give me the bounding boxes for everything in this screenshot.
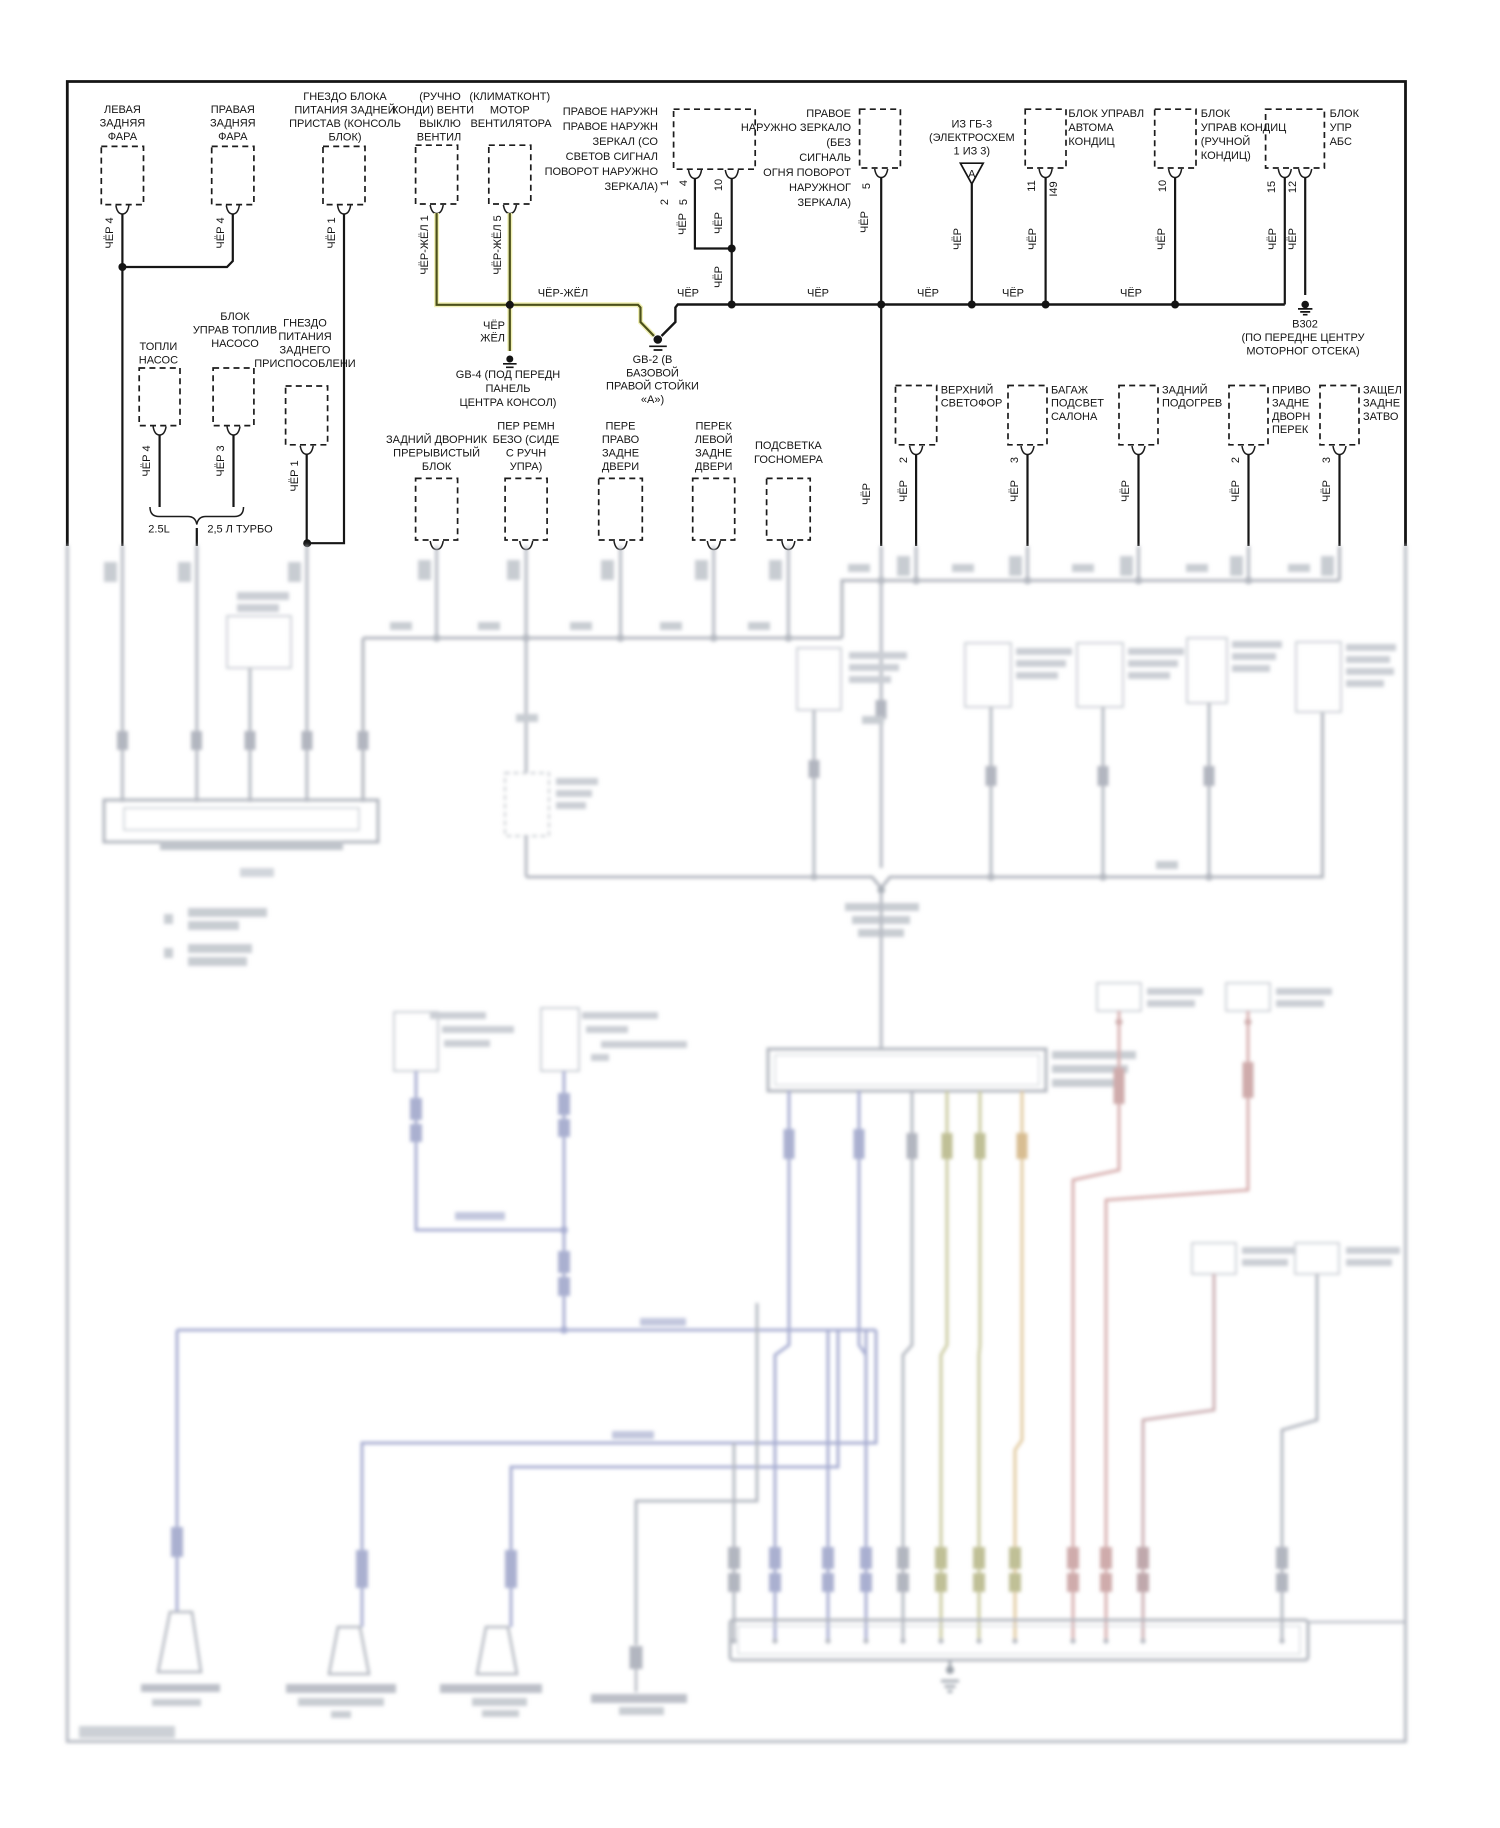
svg-text:ФАРА: ФАРА xyxy=(108,131,138,143)
svg-text:ЧЁР 1: ЧЁР 1 xyxy=(326,217,338,248)
svg-text:НАРУЖНО ЗЕРКАЛО: НАРУЖНО ЗЕРКАЛО xyxy=(741,122,852,134)
svg-text:БАГАЖ: БАГАЖ xyxy=(1051,384,1088,396)
svg-text:ЧЁР: ЧЁР xyxy=(898,480,910,502)
svg-text:ЗАЩЕЛ: ЗАЩЕЛ xyxy=(1363,384,1402,396)
svg-text:ЧЁР: ЧЁР xyxy=(807,288,829,300)
svg-text:ЗАДНЕ: ЗАДНЕ xyxy=(1272,398,1309,410)
svg-text:БЕЗО (СИДЕ: БЕЗО (СИДЕ xyxy=(493,434,560,446)
svg-text:2: 2 xyxy=(659,199,671,205)
svg-text:GB-2 (В: GB-2 (В xyxy=(633,354,673,366)
svg-text:10: 10 xyxy=(1157,180,1169,192)
svg-text:ОГНЯ ПОВОРОТ: ОГНЯ ПОВОРОТ xyxy=(763,167,851,179)
svg-text:ЗАДНИЙ ДВОРНИК: ЗАДНИЙ ДВОРНИК xyxy=(386,433,488,446)
svg-text:ЧЁР: ЧЁР xyxy=(1230,480,1242,502)
svg-text:ГНЕЗДО БЛОКА: ГНЕЗДО БЛОКА xyxy=(303,91,387,103)
svg-text:ВЕНТИЛЯТОРА: ВЕНТИЛЯТОРА xyxy=(470,118,552,130)
svg-text:ПРАВО: ПРАВО xyxy=(602,434,640,446)
svg-text:ЧЁР: ЧЁР xyxy=(713,212,725,234)
svg-text:2.5L: 2.5L xyxy=(148,524,169,536)
svg-text:(БЕЗ: (БЕЗ xyxy=(826,137,851,149)
svg-text:С РУЧН: С РУЧН xyxy=(506,448,546,460)
svg-text:ЖЁЛ: ЖЁЛ xyxy=(480,333,505,345)
svg-text:ПРИВО: ПРИВО xyxy=(1272,384,1311,396)
svg-text:ЗАДНЕ: ЗАДНЕ xyxy=(1363,398,1400,410)
svg-text:ЧЁР: ЧЁР xyxy=(1321,480,1333,502)
svg-text:ПАНЕЛЬ: ПАНЕЛЬ xyxy=(486,383,531,395)
svg-text:ПРАВОЙ СТОЙКИ: ПРАВОЙ СТОЙКИ xyxy=(606,380,699,393)
svg-text:АБС: АБС xyxy=(1330,136,1352,148)
svg-text:ЧЁР: ЧЁР xyxy=(483,320,505,332)
svg-text:СВЕТОВ СИГНАЛ: СВЕТОВ СИГНАЛ xyxy=(566,151,658,163)
svg-text:БЛОК: БЛОК xyxy=(422,461,452,473)
svg-text:ЧЁР: ЧЁР xyxy=(861,483,873,505)
svg-text:ЧЁР: ЧЁР xyxy=(952,228,964,250)
svg-text:ЧЁР-ЖЁЛ 1: ЧЁР-ЖЁЛ 1 xyxy=(419,215,431,275)
svg-text:ПРАВАЯ: ПРАВАЯ xyxy=(211,104,255,116)
svg-text:ПРАВОЕ НАРУЖН: ПРАВОЕ НАРУЖН xyxy=(563,106,658,118)
svg-text:ЧЁР: ЧЁР xyxy=(1267,228,1279,250)
svg-text:ЗЕРКАЛА): ЗЕРКАЛА) xyxy=(604,181,658,193)
svg-text:ДВЕРИ: ДВЕРИ xyxy=(695,461,732,473)
svg-text:ЧЁР: ЧЁР xyxy=(859,211,871,233)
svg-text:ЧЁР: ЧЁР xyxy=(1287,228,1299,250)
svg-text:УПР: УПР xyxy=(1330,122,1352,134)
svg-text:ПИТАНИЯ: ПИТАНИЯ xyxy=(278,331,331,343)
svg-text:5: 5 xyxy=(861,183,873,189)
svg-text:ЧЁР: ЧЁР xyxy=(1027,228,1039,250)
svg-text:5: 5 xyxy=(678,199,690,205)
svg-text:ПОДСВЕТ: ПОДСВЕТ xyxy=(1051,398,1104,410)
svg-text:B302: B302 xyxy=(1292,319,1318,331)
svg-text:УПРАВ КОНДИЦ: УПРАВ КОНДИЦ xyxy=(1201,122,1287,134)
svg-text:СИГНАЛЬ: СИГНАЛЬ xyxy=(799,152,851,164)
svg-text:ЧЁР: ЧЁР xyxy=(713,266,725,288)
svg-text:ПРАВОЕ: ПРАВОЕ xyxy=(806,108,851,120)
svg-text:ПРАВОЕ НАРУЖН: ПРАВОЕ НАРУЖН xyxy=(563,121,658,133)
svg-text:ЗАДНЯЯ: ЗАДНЯЯ xyxy=(210,118,256,130)
svg-text:УПРА): УПРА) xyxy=(510,461,543,473)
svg-text:ЧЁР: ЧЁР xyxy=(677,288,699,300)
svg-text:ЛЕВАЯ: ЛЕВАЯ xyxy=(104,104,141,116)
svg-text:ЦЕНТРА КОНСОЛ): ЦЕНТРА КОНСОЛ) xyxy=(460,397,557,409)
svg-text:ЧЁР: ЧЁР xyxy=(1156,228,1168,250)
svg-text:ЧЁР 1: ЧЁР 1 xyxy=(289,460,301,491)
svg-text:ПЕРЕК: ПЕРЕК xyxy=(696,421,733,433)
svg-text:ЧЁР 4: ЧЁР 4 xyxy=(104,217,116,248)
svg-text:НАСОСО: НАСОСО xyxy=(211,338,259,350)
svg-text:3: 3 xyxy=(1009,457,1021,463)
svg-text:ФАРА: ФАРА xyxy=(218,131,248,143)
svg-text:2,5 Л ТУРБО: 2,5 Л ТУРБО xyxy=(207,524,273,536)
svg-text:МОТОР: МОТОР xyxy=(490,105,530,117)
svg-text:(РУЧНО: (РУЧНО xyxy=(419,91,461,103)
svg-text:ИЗ ГБ-3: ИЗ ГБ-3 xyxy=(952,119,993,131)
svg-text:НАРУЖНОГ: НАРУЖНОГ xyxy=(789,182,851,194)
svg-text:КОНДИ) ВЕНТИ: КОНДИ) ВЕНТИ xyxy=(392,105,474,117)
svg-text:А: А xyxy=(968,169,976,181)
svg-text:ЧЁР: ЧЁР xyxy=(677,213,689,235)
svg-text:АВТОМА: АВТОМА xyxy=(1068,122,1114,134)
svg-text:УПРАВ ТОПЛИВ: УПРАВ ТОПЛИВ xyxy=(193,325,277,337)
svg-text:ЧЁР 3: ЧЁР 3 xyxy=(215,445,227,476)
svg-text:ГНЕЗДО: ГНЕЗДО xyxy=(283,318,327,330)
svg-text:ПИТАНИЯ ЗАДНЕЙ: ПИТАНИЯ ЗАДНЕЙ xyxy=(294,104,395,117)
svg-text:СВЕТОФОР: СВЕТОФОР xyxy=(941,398,1003,410)
svg-text:(ПО ПЕРЕДНЕ ЦЕНТРУ: (ПО ПЕРЕДНЕ ЦЕНТРУ xyxy=(1241,332,1365,344)
svg-text:(КЛИМАТКОНТ): (КЛИМАТКОНТ) xyxy=(469,91,550,103)
svg-text:ЗАТВО: ЗАТВО xyxy=(1363,411,1399,423)
svg-text:ТОПЛИ: ТОПЛИ xyxy=(139,341,177,353)
svg-text:БЛОК: БЛОК xyxy=(1330,108,1360,120)
svg-text:ВЫКЛЮ: ВЫКЛЮ xyxy=(419,118,461,130)
svg-text:ЗАДНЕГО: ЗАДНЕГО xyxy=(280,345,331,357)
svg-text:ЗАДНЯЯ: ЗАДНЯЯ xyxy=(100,118,146,130)
svg-text:3: 3 xyxy=(1321,457,1333,463)
svg-text:ЧЁР: ЧЁР xyxy=(1002,288,1024,300)
svg-text:ДВОРН: ДВОРН xyxy=(1272,411,1310,423)
svg-text:11: 11 xyxy=(1026,180,1038,191)
svg-text:ЧЁР 4: ЧЁР 4 xyxy=(141,445,153,476)
svg-text:ЧЁР: ЧЁР xyxy=(917,288,939,300)
svg-text:2: 2 xyxy=(1230,457,1242,463)
svg-text:«А»): «А») xyxy=(641,394,664,406)
svg-text:4: 4 xyxy=(678,180,690,186)
svg-text:ПЕРЕК: ПЕРЕК xyxy=(1272,424,1309,436)
svg-text:ЧЁР-ЖЁЛ: ЧЁР-ЖЁЛ xyxy=(538,288,588,300)
svg-text:ПРИСПОСОБЛЕНИ: ПРИСПОСОБЛЕНИ xyxy=(254,358,355,370)
svg-text:ЧЁР-ЖЁЛ 5: ЧЁР-ЖЁЛ 5 xyxy=(492,215,504,275)
svg-text:GB-4 (ПОД ПЕРЕДН: GB-4 (ПОД ПЕРЕДН xyxy=(456,369,560,381)
svg-text:ЧЁР: ЧЁР xyxy=(1120,480,1132,502)
svg-text:БЛОК: БЛОК xyxy=(220,311,250,323)
svg-text:ЛЕВОЙ: ЛЕВОЙ xyxy=(695,433,733,446)
svg-text:1: 1 xyxy=(659,180,671,186)
svg-text:ЧЁР 4: ЧЁР 4 xyxy=(215,217,227,248)
svg-text:КОНДИЦ): КОНДИЦ) xyxy=(1201,150,1251,162)
svg-text:10: 10 xyxy=(713,179,725,191)
svg-text:(ЭЛЕКТРОСХЕМ: (ЭЛЕКТРОСХЕМ xyxy=(929,132,1015,144)
svg-text:ПЕРЕ: ПЕРЕ xyxy=(606,421,636,433)
svg-text:БЛОК УПРАВЛ: БЛОК УПРАВЛ xyxy=(1068,108,1144,120)
svg-text:ВЕНТИЛ: ВЕНТИЛ xyxy=(417,132,461,144)
svg-text:НАСОС: НАСОС xyxy=(139,354,178,366)
svg-text:ПОДОГРЕВ: ПОДОГРЕВ xyxy=(1162,398,1222,410)
svg-text:БАЗОВОЙ: БАЗОВОЙ xyxy=(626,366,679,379)
svg-text:ПОВОРОТ НАРУЖНО: ПОВОРОТ НАРУЖНО xyxy=(545,166,659,178)
svg-text:ПОДСВЕТКА: ПОДСВЕТКА xyxy=(755,440,822,452)
svg-text:МОТОРНОГ ОТСЕКА): МОТОРНОГ ОТСЕКА) xyxy=(1246,346,1359,358)
svg-text:(РУЧНОЙ: (РУЧНОЙ xyxy=(1201,135,1250,148)
svg-text:ЗАДНЕ: ЗАДНЕ xyxy=(602,448,639,460)
svg-text:ЗАДНЕ: ЗАДНЕ xyxy=(695,448,732,460)
svg-text:12: 12 xyxy=(1287,181,1299,193)
svg-text:1 ИЗ 3): 1 ИЗ 3) xyxy=(954,146,991,158)
svg-text:ПРИСТАВ (КОНСОЛЬ: ПРИСТАВ (КОНСОЛЬ xyxy=(289,118,401,130)
svg-text:ЗЕРКАЛ (СО: ЗЕРКАЛ (СО xyxy=(592,136,658,148)
svg-text:ЗАДНИЙ: ЗАДНИЙ xyxy=(1162,383,1208,396)
svg-text:I49: I49 xyxy=(1048,181,1060,196)
svg-text:БЛОК: БЛОК xyxy=(1201,108,1231,120)
svg-text:БЛОК): БЛОК) xyxy=(328,132,361,144)
svg-text:ЧЁР: ЧЁР xyxy=(1009,480,1021,502)
svg-text:ГОСНОМЕРА: ГОСНОМЕРА xyxy=(754,454,823,466)
svg-text:15: 15 xyxy=(1266,181,1278,193)
svg-text:ЗЕРКАЛА): ЗЕРКАЛА) xyxy=(797,197,851,209)
svg-text:ПЕР РЕМН: ПЕР РЕМН xyxy=(497,421,554,433)
svg-text:ЧЁР: ЧЁР xyxy=(1120,288,1142,300)
svg-text:ДВЕРИ: ДВЕРИ xyxy=(602,461,639,473)
svg-text:ПРЕРЫВИСТЫЙ: ПРЕРЫВИСТЫЙ xyxy=(393,447,480,460)
svg-text:ВЕРХНИЙ: ВЕРХНИЙ xyxy=(941,383,994,396)
svg-text:2: 2 xyxy=(898,457,910,463)
svg-text:САЛОНА: САЛОНА xyxy=(1051,411,1098,423)
svg-text:КОНДИЦ: КОНДИЦ xyxy=(1068,136,1114,148)
